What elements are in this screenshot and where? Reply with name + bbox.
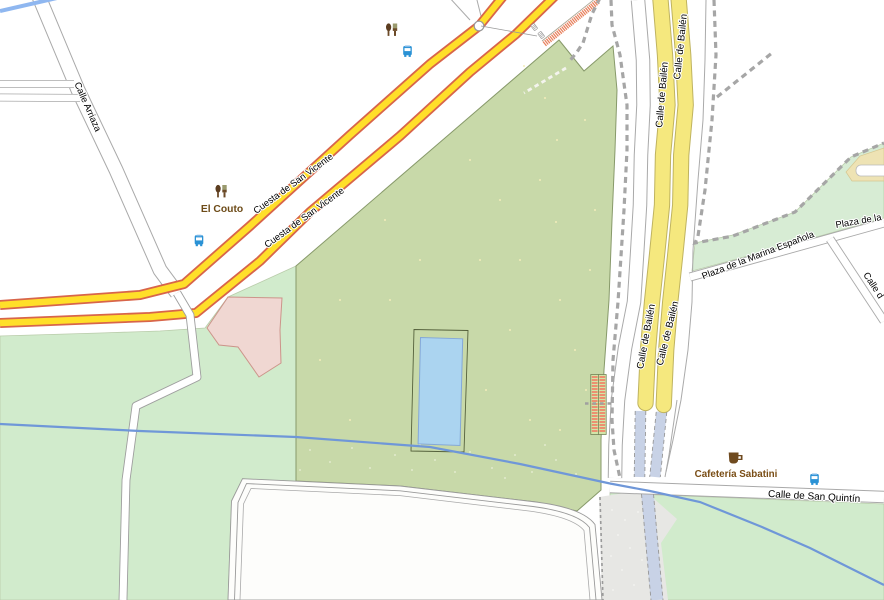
svg-text:El Couto: El Couto	[201, 204, 243, 215]
svg-text:Cafetería Sabatini: Cafetería Sabatini	[695, 469, 778, 480]
